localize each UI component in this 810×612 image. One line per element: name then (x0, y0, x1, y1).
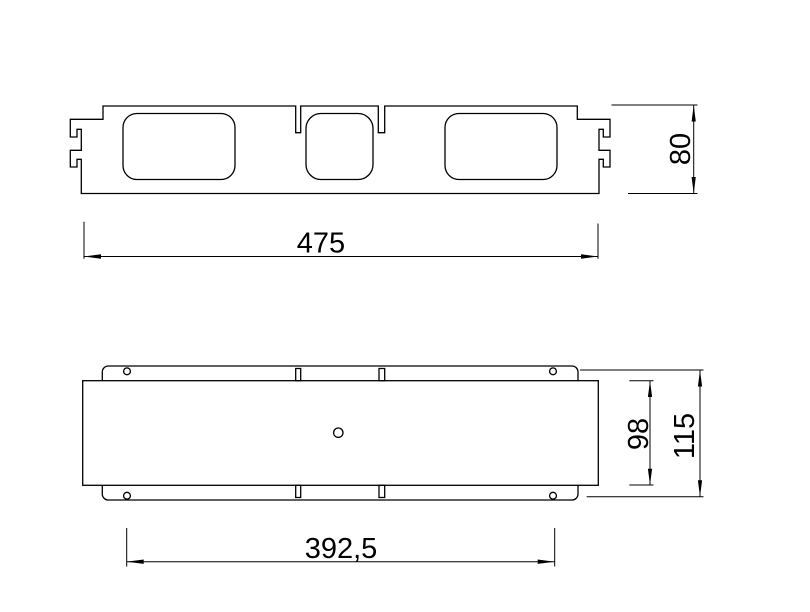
dimension-overall-depth-label: 115 (669, 413, 701, 459)
dimension-overall-height-label: 80 (665, 133, 697, 165)
plan-view (83, 366, 599, 500)
plan-view-body (83, 381, 599, 486)
arrowhead-left (84, 254, 101, 258)
dimension-hole-pitch-label: 392,5 (305, 533, 378, 565)
dimension-hole-pitch: 392,5 (127, 528, 555, 567)
cad-technical-drawing: 475 80 392,5 98 115 (0, 0, 810, 612)
arrowhead-left (127, 560, 144, 564)
front-view-cutout-right (445, 114, 557, 180)
dimension-overall-length-label: 475 (297, 228, 345, 260)
drawing-sheet: 475 80 392,5 98 115 (0, 0, 810, 612)
front-view (70, 106, 610, 194)
front-view-outline (70, 106, 610, 194)
front-view-cutout-left (123, 114, 235, 180)
plan-view-tab-top-left (296, 369, 301, 381)
arrowhead-up (692, 105, 696, 122)
plan-view-hole-bottom-right (550, 492, 557, 499)
dimension-overall-length: 475 (84, 222, 598, 260)
plan-view-tab-bottom-right (379, 485, 385, 497)
plan-view-tab-top-right (379, 369, 385, 381)
dimension-overall-height: 80 (612, 105, 698, 194)
arrowhead-down (698, 480, 702, 497)
dimension-inner-depth: 98 (623, 381, 655, 485)
arrowhead-down (692, 177, 696, 194)
arrowhead-up (698, 370, 702, 387)
plan-view-hole-bottom-left (124, 492, 131, 499)
arrowhead-right (538, 560, 555, 564)
arrowhead-down (648, 469, 652, 485)
dimension-inner-depth-label: 98 (623, 418, 655, 450)
plan-view-hole-top-left (124, 368, 131, 375)
plan-view-tab-bottom-left (296, 485, 301, 497)
plan-view-hole-top-right (550, 368, 557, 375)
arrowhead-right (581, 254, 598, 258)
front-view-cutout-center (306, 114, 373, 180)
arrowhead-up (648, 381, 652, 397)
